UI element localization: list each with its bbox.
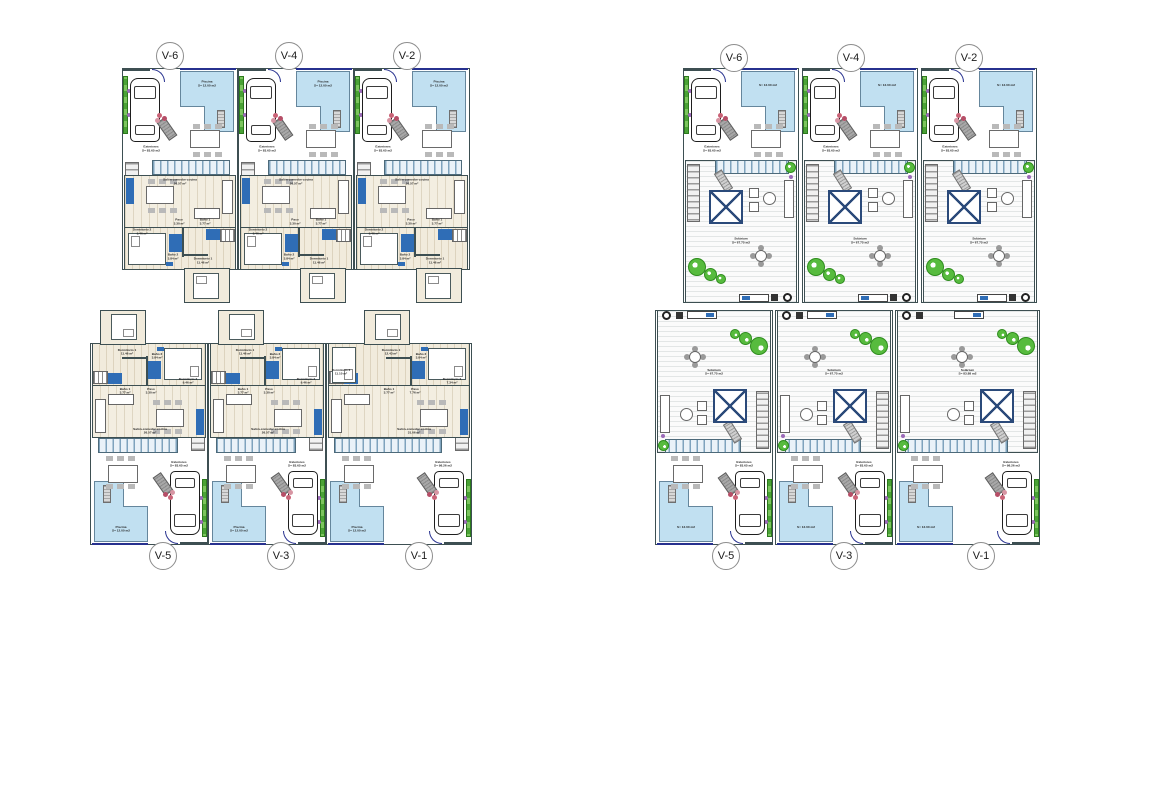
solarium-floor-panel: S= 12.00 m2 Exteriores S= 83.65 m2 Solár… [0, 0, 1170, 785]
room-labels: S= 12.00 m2 Exteriores S= 83.65 m2 Solár… [802, 68, 918, 305]
room-label-solarium: Solárium S= 67.75 m2 [788, 368, 880, 375]
unit-marker-v5: V-5 [712, 542, 740, 570]
floor-plan-sheet: Piscina S= 12.00 m2 Exteriores S= 83.65 … [0, 0, 1170, 785]
villa-unit-v5-solarium: S= 12.00 m2 Exteriores S= 83.65 m2 Solár… [655, 308, 773, 545]
villa-unit-v6-solarium: S= 12.00 m2 Exteriores S= 83.65 m2 Solár… [683, 68, 799, 305]
room-label-piscina: S= 12.00 m2 [987, 84, 1026, 88]
room-labels: S= 12.00 m2 Exteriores S= 83.65 m2 Solár… [921, 68, 1037, 305]
villa-unit-v4-solarium: S= 12.00 m2 Exteriores S= 83.65 m2 Solár… [802, 68, 918, 305]
room-label-solarium: Solárium S= 67.75 m2 [934, 237, 1024, 244]
room-label-exteriores: Exteriores S= 83.65 m2 [694, 145, 730, 152]
room-label-piscina: S= 12.00 m2 [667, 526, 706, 530]
room-label-piscina: S= 12.00 m2 [787, 526, 826, 530]
room-labels: S= 12.00 m2 Exteriores S= 83.65 m2 Solár… [775, 308, 893, 545]
villa-unit-v2-solarium: S= 12.00 m2 Exteriores S= 83.65 m2 Solár… [921, 68, 1037, 305]
room-label-piscina: S= 12.00 m2 [907, 526, 946, 530]
unit-marker-v2: V-2 [955, 44, 983, 72]
room-label-piscina: S= 12.00 m2 [749, 84, 788, 88]
room-label-piscina: S= 12.00 m2 [868, 84, 907, 88]
room-label-exteriores: Exteriores S= 83.65 m2 [813, 145, 849, 152]
unit-marker-v6: V-6 [720, 44, 748, 72]
unit-marker-v4: V-4 [837, 44, 865, 72]
room-labels: S= 12.00 m2 Exteriores S= 98.26 m2 Solár… [895, 308, 1040, 545]
room-labels: S= 12.00 m2 Exteriores S= 83.65 m2 Solár… [683, 68, 799, 305]
room-label-exteriores: Exteriores S= 83.65 m2 [932, 145, 968, 152]
room-label-solarium: Solárium S= 83.88 m2 [911, 368, 1024, 375]
villa-unit-v1-solarium: S= 12.00 m2 Exteriores S= 98.26 m2 Solár… [895, 308, 1040, 545]
room-label-exteriores: Exteriores S= 98.26 m2 [993, 460, 1029, 467]
room-label-solarium: Solárium S= 67.75 m2 [696, 237, 786, 244]
room-label-exteriores: Exteriores S= 83.65 m2 [726, 460, 762, 467]
villa-unit-v3-solarium: S= 12.00 m2 Exteriores S= 83.65 m2 Solár… [775, 308, 893, 545]
room-label-solarium: Solárium S= 67.75 m2 [815, 237, 905, 244]
room-labels: S= 12.00 m2 Exteriores S= 83.65 m2 Solár… [655, 308, 773, 545]
room-label-exteriores: Exteriores S= 83.65 m2 [846, 460, 882, 467]
unit-marker-v1: V-1 [967, 542, 995, 570]
unit-marker-v3: V-3 [830, 542, 858, 570]
room-label-solarium: Solárium S= 67.75 m2 [668, 368, 760, 375]
